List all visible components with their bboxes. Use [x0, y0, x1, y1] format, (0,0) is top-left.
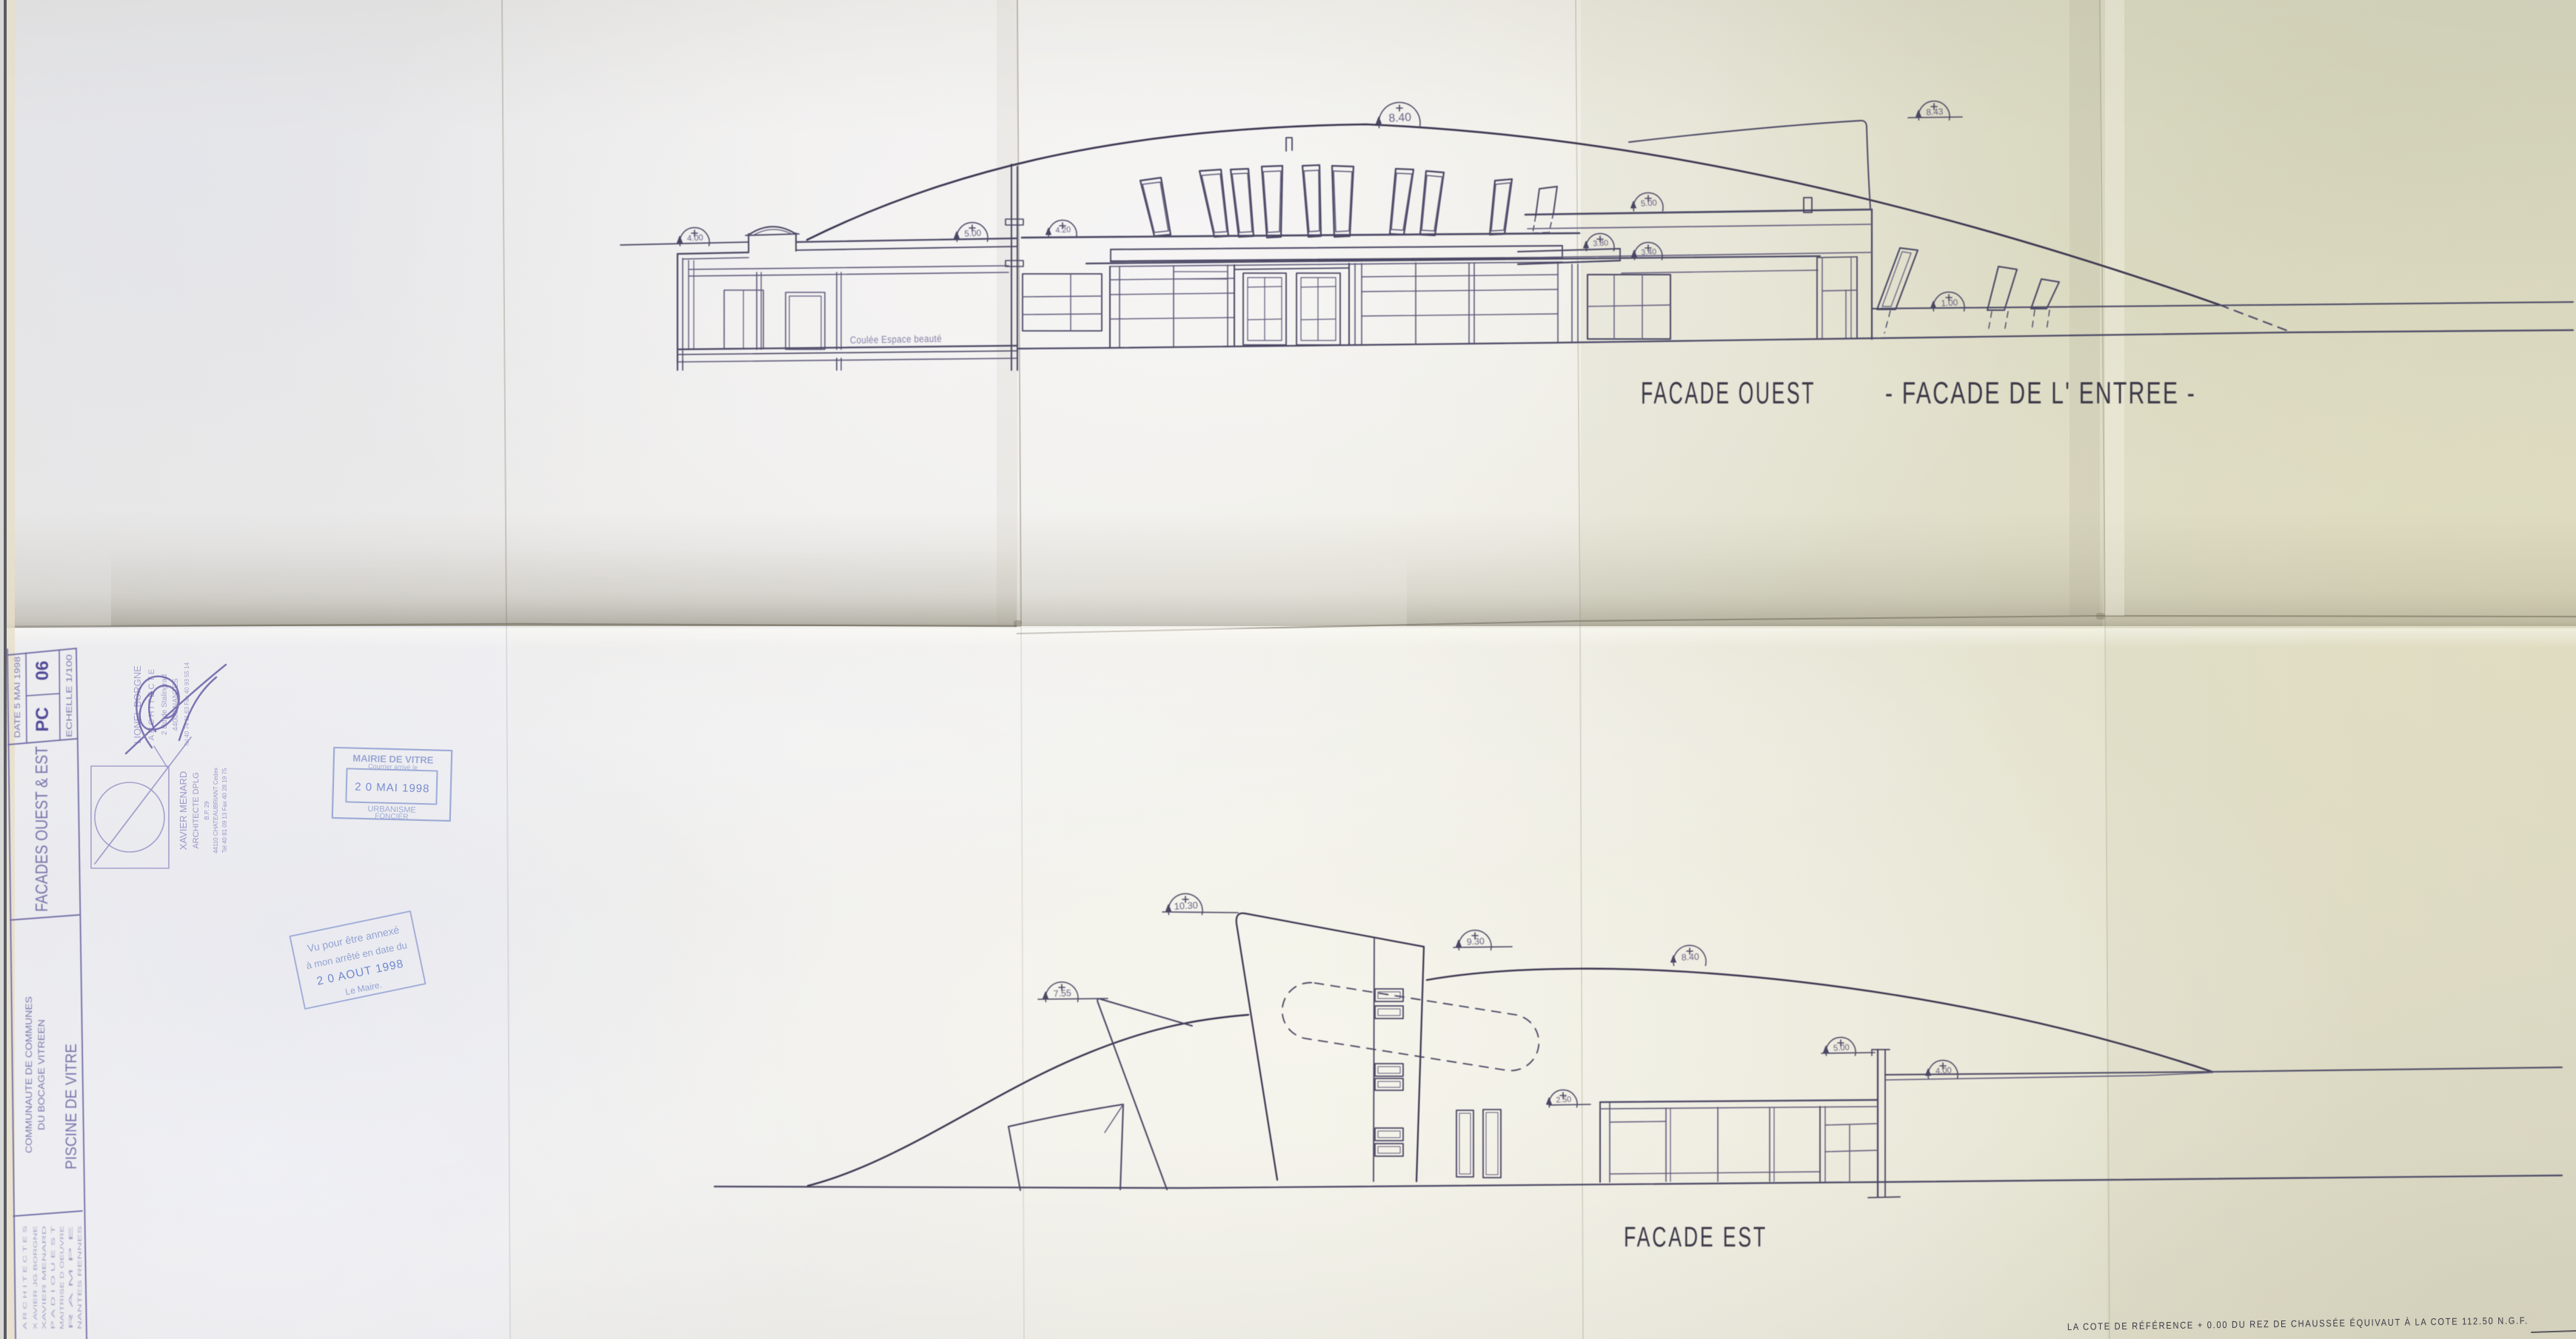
svg-text:9.30: 9.30 — [1466, 936, 1485, 947]
svg-text:06: 06 — [33, 661, 53, 681]
svg-text:Tel 40 74 11 63 Fax 40 93 55: Tel 40 74 11 63 Fax 40 93 55 14 — [184, 662, 190, 747]
svg-text:X AVIER JG BORGNE: X AVIER JG BORGNE — [33, 1225, 39, 1329]
svg-text:R A M P E: R A M P E — [69, 1225, 74, 1329]
svg-text:XAVIER MENARD: XAVIER MENARD — [178, 771, 189, 850]
svg-text:DU BOCAGE VITREEN: DU BOCAGE VITREEN — [36, 1019, 47, 1130]
svg-text:Courrier arrivé le: Courrier arrivé le — [368, 762, 418, 771]
svg-text:FACADE OUEST: FACADE OUEST — [1641, 375, 1816, 410]
svg-text:FACADE EST: FACADE EST — [1624, 1222, 1767, 1253]
svg-text:NANTES RENNES: NANTES RENNES — [78, 1225, 83, 1329]
svg-text:- FACADE DE L' ENTREE -: - FACADE DE L' ENTREE - — [1885, 375, 2196, 410]
svg-text:8.43: 8.43 — [1926, 107, 1944, 117]
svg-text:3.80: 3.80 — [1593, 238, 1608, 248]
svg-text:8.40: 8.40 — [1388, 111, 1412, 125]
svg-text:4.00: 4.00 — [1936, 1066, 1952, 1075]
svg-text:2 0 MAI 1998: 2 0 MAI 1998 — [355, 781, 430, 796]
svg-text:4.00: 4.00 — [687, 233, 703, 243]
svg-text:PC: PC — [33, 707, 53, 731]
svg-text:3.40: 3.40 — [1641, 247, 1656, 257]
svg-text:ECHELLE 1/100: ECHELLE 1/100 — [65, 654, 74, 737]
svg-text:2.50: 2.50 — [1556, 1095, 1571, 1104]
svg-text:MAITRISE D OEUVRE: MAITRISE D OEUVRE — [60, 1225, 65, 1329]
svg-text:5.00: 5.00 — [1641, 198, 1657, 208]
svg-text:FONCIER: FONCIER — [375, 812, 408, 821]
svg-text:A R C H I T E C T E S: A R C H I T E C T E S — [23, 1225, 28, 1329]
svg-text:COMMUNAUTE DE COMMUNES: COMMUNAUTE DE COMMUNES — [24, 996, 34, 1153]
svg-text:P A D I O U E S T: P A D I O U E S T — [51, 1224, 56, 1329]
svg-text:4.20: 4.20 — [1055, 225, 1071, 235]
svg-text:5.00: 5.00 — [964, 228, 982, 238]
svg-text:PISCINE DE VITRE: PISCINE DE VITRE — [63, 1044, 80, 1169]
svg-text:10.30: 10.30 — [1174, 899, 1198, 912]
svg-text:1.00: 1.00 — [1941, 298, 1958, 308]
svg-text:8.40: 8.40 — [1681, 951, 1699, 962]
svg-text:Coulée Espace beauté: Coulée Espace beauté — [850, 333, 942, 346]
svg-text:7.55: 7.55 — [1053, 987, 1071, 999]
svg-text:44110 CHATEAUBRIANT Cedex: 44110 CHATEAUBRIANT Cedex — [213, 768, 219, 853]
svg-text:DATE 5 MAI 1998: DATE 5 MAI 1998 — [13, 657, 22, 738]
svg-text:Tel 40 81 09 13 Fax 40 28 19: Tel 40 81 09 13 Fax 40 28 19 75 — [221, 768, 228, 853]
svg-text:XAVIER MENARD: XAVIER MENARD — [42, 1226, 47, 1329]
svg-text:ARCHITECTE DPLG: ARCHITECTE DPLG — [192, 772, 201, 848]
svg-text:B.P. 29: B.P. 29 — [204, 801, 210, 820]
svg-text:FACADES OUEST & EST: FACADES OUEST & EST — [32, 746, 51, 912]
svg-text:5.00: 5.00 — [1833, 1043, 1850, 1053]
